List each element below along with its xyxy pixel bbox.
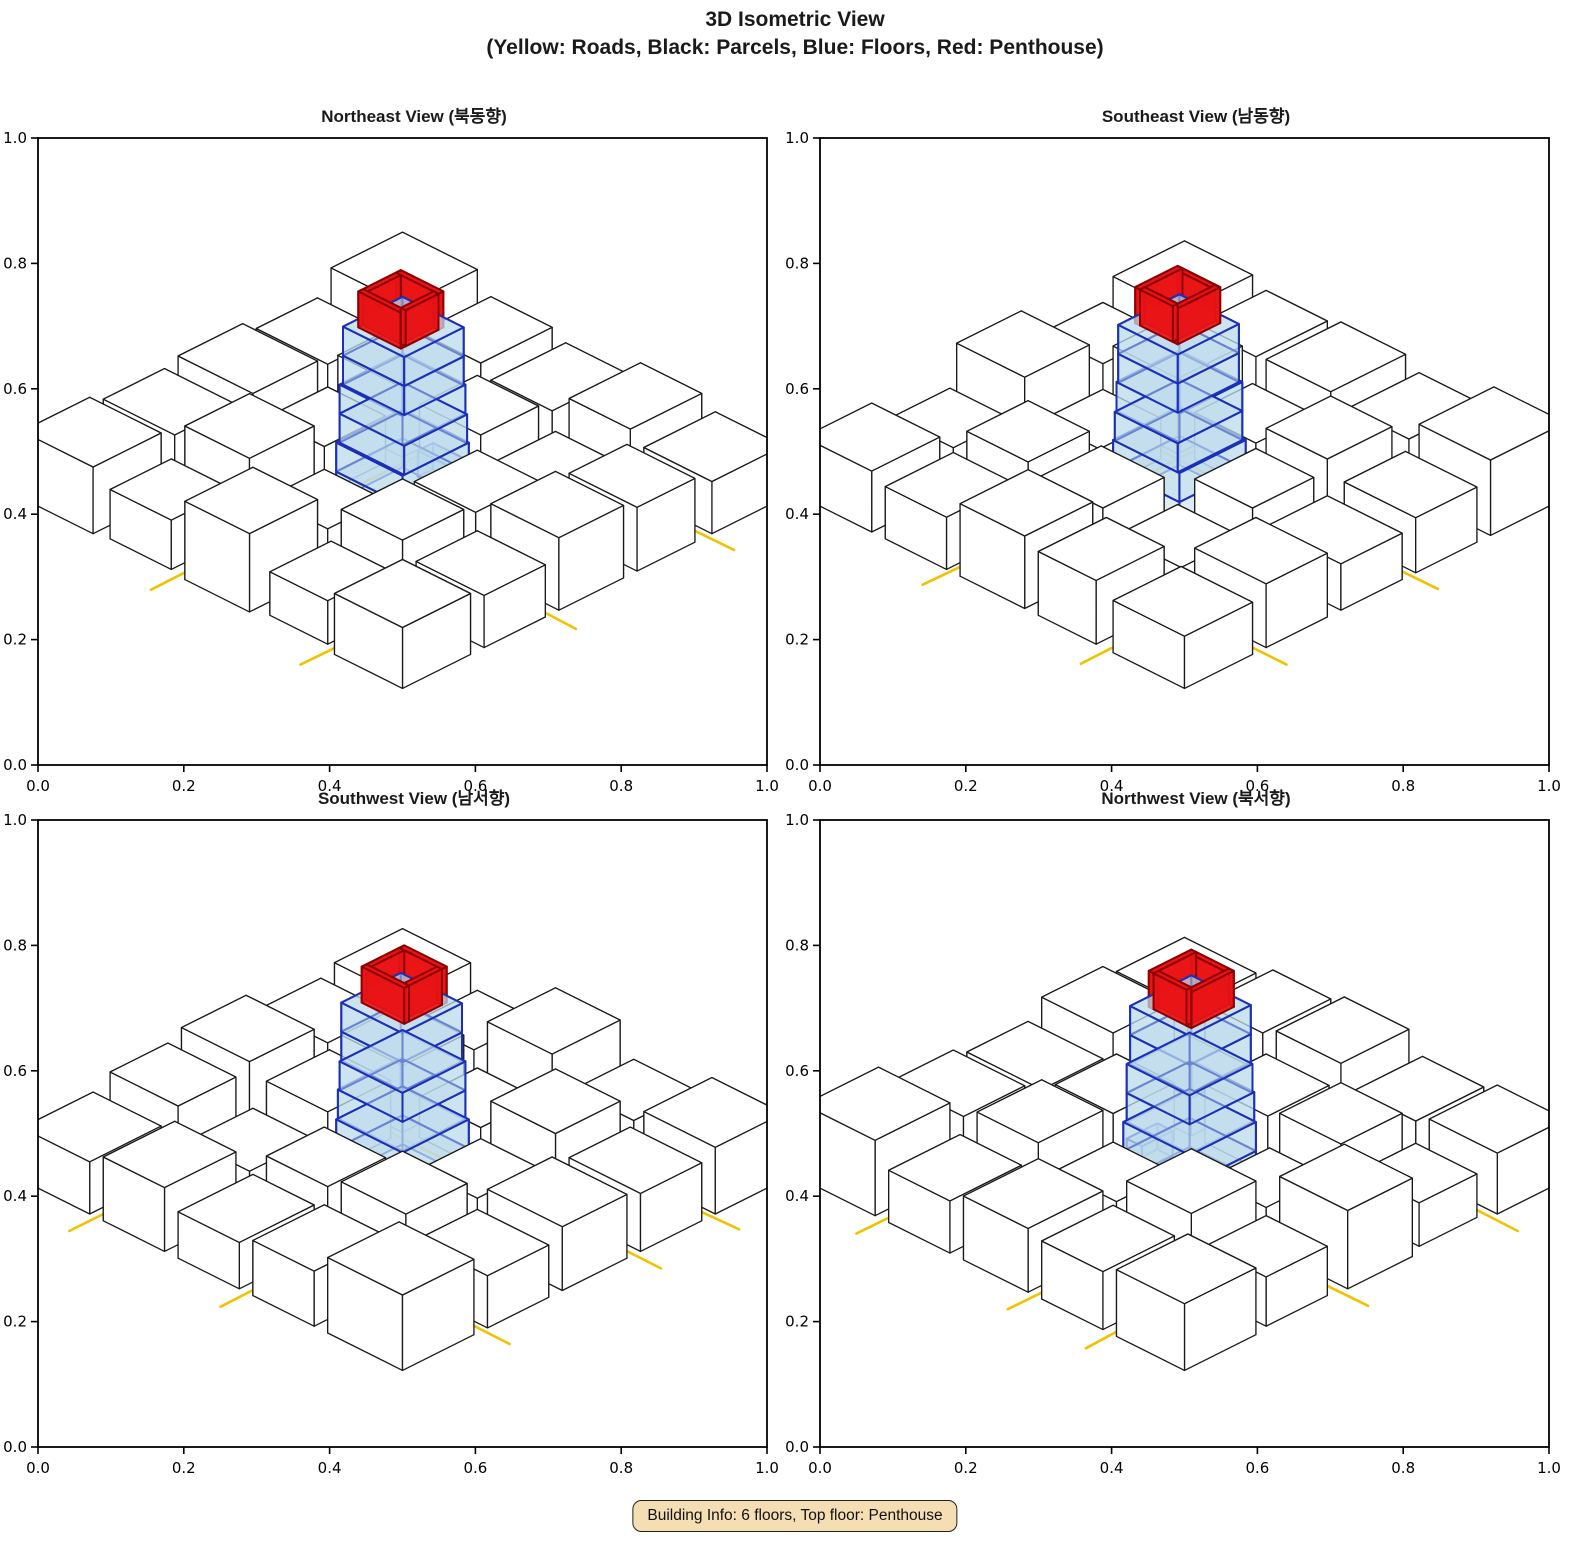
svg-text:0.6: 0.6: [785, 380, 809, 398]
subplot-title-southwest: Southwest View (남서향): [0, 786, 790, 812]
svg-text:0.4: 0.4: [3, 505, 27, 523]
svg-text:0.2: 0.2: [785, 1313, 809, 1331]
svg-text:0.8: 0.8: [785, 254, 809, 272]
subplot-title-northwest: Northwest View (북서향): [782, 786, 1572, 812]
svg-text:0.0: 0.0: [26, 1459, 50, 1477]
subplot-title-southeast: Southeast View (남동향): [782, 104, 1572, 130]
scene-southwest: 0.00.00.20.20.40.40.60.60.80.81.01.0: [0, 812, 790, 1487]
svg-text:0.8: 0.8: [1391, 1459, 1415, 1477]
svg-text:1.0: 1.0: [3, 812, 27, 829]
svg-text:0.6: 0.6: [785, 1062, 809, 1080]
subplot-title-northeast: Northeast View (북동향): [0, 104, 790, 130]
svg-text:0.2: 0.2: [3, 631, 27, 649]
svg-text:0.2: 0.2: [785, 631, 809, 649]
svg-text:0.4: 0.4: [1100, 1459, 1124, 1477]
svg-text:0.4: 0.4: [785, 505, 809, 523]
svg-text:1.0: 1.0: [3, 130, 27, 147]
svg-text:0.6: 0.6: [1245, 1459, 1269, 1477]
svg-text:0.6: 0.6: [3, 380, 27, 398]
building-info-badge: Building Info: 6 floors, Top floor: Pent…: [632, 1500, 957, 1532]
svg-text:1.0: 1.0: [785, 812, 809, 829]
svg-text:0.8: 0.8: [609, 1459, 633, 1477]
svg-text:0.0: 0.0: [785, 1438, 809, 1456]
svg-text:0.2: 0.2: [172, 1459, 196, 1477]
svg-text:0.0: 0.0: [785, 756, 809, 774]
subplot-northeast: Northeast View (북동향) 0.00.00.20.20.40.40…: [0, 104, 790, 810]
svg-text:0.6: 0.6: [463, 1459, 487, 1477]
svg-text:0.8: 0.8: [3, 254, 27, 272]
scene-northwest: 0.00.00.20.20.40.40.60.60.80.81.01.0: [782, 812, 1572, 1487]
svg-text:0.6: 0.6: [3, 1062, 27, 1080]
subplot-northwest: Northwest View (북서향) 0.00.00.20.20.40.40…: [782, 786, 1572, 1492]
svg-text:0.0: 0.0: [3, 1438, 27, 1456]
figure-subtitle-legend: (Yellow: Roads, Black: Parcels, Blue: Fl…: [0, 36, 1590, 60]
svg-text:0.4: 0.4: [3, 1187, 27, 1205]
subplot-southwest: Southwest View (남서향) 0.00.00.20.20.40.40…: [0, 786, 790, 1492]
svg-text:0.2: 0.2: [954, 1459, 978, 1477]
svg-text:1.0: 1.0: [1537, 1459, 1561, 1477]
scene-southeast: 0.00.00.20.20.40.40.60.60.80.81.01.0: [782, 130, 1572, 805]
svg-text:0.0: 0.0: [808, 1459, 832, 1477]
figure-title: 3D Isometric View: [0, 8, 1590, 32]
svg-text:0.2: 0.2: [3, 1313, 27, 1331]
svg-text:1.0: 1.0: [785, 130, 809, 147]
svg-text:1.0: 1.0: [755, 1459, 779, 1477]
svg-text:0.4: 0.4: [318, 1459, 342, 1477]
scene-northeast: 0.00.00.20.20.40.40.60.60.80.81.01.0: [0, 130, 790, 805]
svg-text:0.4: 0.4: [785, 1187, 809, 1205]
svg-text:0.0: 0.0: [3, 756, 27, 774]
svg-text:0.8: 0.8: [3, 936, 27, 954]
subplot-southeast: Southeast View (남동향) 0.00.00.20.20.40.40…: [782, 104, 1572, 810]
svg-text:0.8: 0.8: [785, 936, 809, 954]
